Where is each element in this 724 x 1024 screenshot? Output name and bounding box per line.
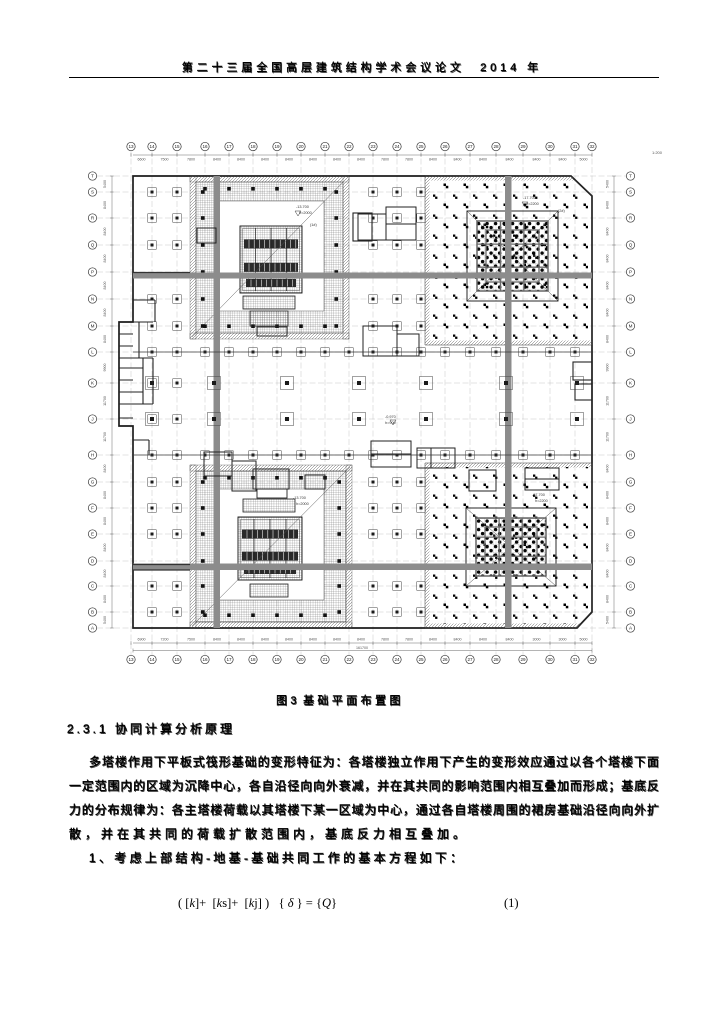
svg-text:h=2000: h=2000 <box>299 211 312 215</box>
svg-text:30: 30 <box>547 657 553 662</box>
svg-text:H: H <box>91 453 94 458</box>
svg-text:8400: 8400 <box>606 595 610 603</box>
svg-text:11700: 11700 <box>103 396 107 406</box>
svg-text:8400: 8400 <box>506 638 514 642</box>
svg-text:h=2200: h=2200 <box>526 202 539 206</box>
svg-text:8400: 8400 <box>213 638 221 642</box>
svg-text:20: 20 <box>298 144 304 149</box>
svg-text:8400: 8400 <box>103 595 107 603</box>
svg-text:K: K <box>91 381 95 386</box>
svg-text:14: 14 <box>149 657 155 662</box>
svg-text:8400: 8400 <box>103 255 107 263</box>
svg-text:8400: 8400 <box>261 638 269 642</box>
svg-text:8400: 8400 <box>606 335 610 343</box>
svg-text:6900: 6900 <box>138 638 146 642</box>
svg-text:E: E <box>629 532 632 537</box>
svg-text:8400: 8400 <box>103 491 107 499</box>
svg-text:19: 19 <box>274 144 280 149</box>
svg-text:23: 23 <box>370 144 376 149</box>
svg-text:7800: 7800 <box>381 638 389 642</box>
svg-text:29: 29 <box>520 144 526 149</box>
svg-text:13: 13 <box>128 657 134 662</box>
svg-text:-13.700: -13.700 <box>293 496 306 500</box>
svg-text:15: 15 <box>174 657 180 662</box>
svg-text:8400: 8400 <box>533 158 541 162</box>
svg-text:R: R <box>629 216 633 221</box>
svg-text:-17.700: -17.700 <box>523 196 536 200</box>
svg-text:3000: 3000 <box>559 638 567 642</box>
svg-text:5000: 5000 <box>580 638 588 642</box>
svg-text:D: D <box>629 559 633 564</box>
svg-text:9900: 9900 <box>103 364 107 372</box>
svg-text:8400: 8400 <box>506 158 514 162</box>
svg-text:8400: 8400 <box>237 638 245 642</box>
svg-text:31: 31 <box>572 657 578 662</box>
svg-text:14: 14 <box>149 144 155 149</box>
svg-text:27: 27 <box>467 144 473 149</box>
svg-text:F: F <box>91 506 94 511</box>
svg-text:8400: 8400 <box>261 158 269 162</box>
svg-text:M: M <box>629 324 633 329</box>
svg-text:8400: 8400 <box>606 491 610 499</box>
svg-text:8400: 8400 <box>479 158 487 162</box>
svg-text:8400: 8400 <box>103 335 107 343</box>
svg-text:7200: 7200 <box>161 638 169 642</box>
svg-text:22: 22 <box>346 144 352 149</box>
svg-text:25: 25 <box>418 657 424 662</box>
svg-text:M: M <box>91 324 95 329</box>
svg-text:7800: 7800 <box>405 638 413 642</box>
svg-text:5400: 5400 <box>606 180 610 188</box>
svg-text:25: 25 <box>418 144 424 149</box>
svg-text:26: 26 <box>442 144 448 149</box>
svg-text:L: L <box>629 350 632 355</box>
svg-text:8400: 8400 <box>285 638 293 642</box>
svg-text:31: 31 <box>572 144 578 149</box>
svg-text:8400: 8400 <box>103 282 107 290</box>
svg-text:8400: 8400 <box>333 638 341 642</box>
svg-text:h=2200: h=2200 <box>535 499 548 503</box>
svg-text:20: 20 <box>298 657 304 662</box>
svg-text:24: 24 <box>394 657 400 662</box>
svg-text:8400: 8400 <box>357 158 365 162</box>
svg-text:G: G <box>629 480 633 485</box>
svg-text:16: 16 <box>202 144 208 149</box>
svg-text:D: D <box>91 559 95 564</box>
svg-text:8400: 8400 <box>285 158 293 162</box>
svg-text:15: 15 <box>174 144 180 149</box>
svg-text:K: K <box>629 381 633 386</box>
svg-text:18: 18 <box>250 144 256 149</box>
svg-text:A: A <box>629 626 633 631</box>
svg-text:T: T <box>91 174 94 179</box>
svg-text:L: L <box>91 350 94 355</box>
svg-text:8400: 8400 <box>606 255 610 263</box>
svg-text:32: 32 <box>589 657 595 662</box>
svg-text:8400: 8400 <box>606 282 610 290</box>
svg-text:30: 30 <box>547 144 553 149</box>
svg-text:N: N <box>91 297 94 302</box>
svg-text:(1#): (1#) <box>310 223 317 227</box>
svg-text:29: 29 <box>520 657 526 662</box>
svg-text:7800: 7800 <box>187 158 195 162</box>
svg-text:24: 24 <box>394 144 400 149</box>
svg-text:5400: 5400 <box>103 616 107 624</box>
svg-text:C: C <box>91 584 95 589</box>
svg-text:11700: 11700 <box>103 432 107 442</box>
svg-text:19: 19 <box>274 657 280 662</box>
svg-text:8400: 8400 <box>479 638 487 642</box>
svg-text:8400: 8400 <box>103 309 107 317</box>
svg-text:3000: 3000 <box>533 638 541 642</box>
svg-text:8400: 8400 <box>333 158 341 162</box>
svg-text:8400: 8400 <box>103 570 107 578</box>
svg-text:Q: Q <box>629 243 633 248</box>
svg-text:S: S <box>629 190 632 195</box>
svg-text:8400: 8400 <box>213 158 221 162</box>
svg-text:8400: 8400 <box>606 570 610 578</box>
svg-text:5000: 5000 <box>580 158 588 162</box>
svg-text:7500: 7500 <box>187 638 195 642</box>
svg-text:161700: 161700 <box>356 646 368 650</box>
svg-text:-13.700: -13.700 <box>296 205 309 209</box>
svg-text:7800: 7800 <box>405 158 413 162</box>
svg-text:8400: 8400 <box>454 638 462 642</box>
svg-text:8400: 8400 <box>103 517 107 525</box>
svg-text:28: 28 <box>493 144 499 149</box>
svg-text:11700: 11700 <box>606 396 610 406</box>
svg-text:8400: 8400 <box>606 228 610 236</box>
svg-text:8400: 8400 <box>357 638 365 642</box>
svg-text:8400: 8400 <box>103 544 107 552</box>
svg-text:8400: 8400 <box>309 638 317 642</box>
svg-text:C: C <box>629 584 633 589</box>
svg-text:8400: 8400 <box>606 517 610 525</box>
svg-text:B: B <box>91 610 94 615</box>
svg-text:21: 21 <box>322 144 328 149</box>
svg-text:8400: 8400 <box>606 201 610 209</box>
svg-text:-0.970: -0.970 <box>385 415 396 419</box>
svg-text:32: 32 <box>589 144 595 149</box>
svg-text:S: S <box>91 190 94 195</box>
svg-text:23: 23 <box>370 657 376 662</box>
svg-text:F: F <box>629 506 632 511</box>
svg-text:8400: 8400 <box>103 201 107 209</box>
svg-text:5400: 5400 <box>103 180 107 188</box>
svg-text:1:200: 1:200 <box>652 150 663 155</box>
svg-text:h=2000: h=2000 <box>296 502 309 506</box>
svg-text:R: R <box>91 216 95 221</box>
svg-text:17: 17 <box>226 657 232 662</box>
svg-text:6600: 6600 <box>138 158 146 162</box>
svg-text:18: 18 <box>250 657 256 662</box>
svg-text:9900: 9900 <box>606 364 610 372</box>
svg-text:22: 22 <box>346 657 352 662</box>
svg-text:7800: 7800 <box>381 158 389 162</box>
svg-text:17: 17 <box>226 144 232 149</box>
svg-text:h=900: h=900 <box>385 421 396 425</box>
svg-text:A: A <box>91 626 95 631</box>
svg-text:8400: 8400 <box>309 158 317 162</box>
svg-text:J: J <box>629 417 631 422</box>
svg-text:7500: 7500 <box>161 158 169 162</box>
svg-text:8400: 8400 <box>237 158 245 162</box>
svg-text:T: T <box>629 174 632 179</box>
svg-text:8400: 8400 <box>606 309 610 317</box>
svg-text:5400: 5400 <box>606 616 610 624</box>
svg-text:28: 28 <box>493 657 499 662</box>
svg-text:-17.700: -17.700 <box>532 493 545 497</box>
svg-text:E: E <box>91 532 94 537</box>
svg-text:8400: 8400 <box>429 638 437 642</box>
svg-text:H: H <box>629 453 632 458</box>
svg-text:P: P <box>629 270 632 275</box>
svg-text:16: 16 <box>202 657 208 662</box>
svg-text:27: 27 <box>467 657 473 662</box>
svg-text:G: G <box>91 480 95 485</box>
svg-text:21: 21 <box>322 657 328 662</box>
svg-text:N: N <box>629 297 632 302</box>
svg-text:B: B <box>629 610 632 615</box>
svg-text:11700: 11700 <box>606 432 610 442</box>
svg-text:8400: 8400 <box>606 465 610 473</box>
svg-text:P: P <box>91 270 94 275</box>
svg-text:8400: 8400 <box>429 158 437 162</box>
svg-text:8400: 8400 <box>103 465 107 473</box>
svg-text:13: 13 <box>128 144 134 149</box>
svg-text:8400: 8400 <box>606 544 610 552</box>
svg-text:J: J <box>91 417 93 422</box>
svg-text:Q: Q <box>91 243 95 248</box>
svg-text:8400: 8400 <box>559 158 567 162</box>
svg-text:8400: 8400 <box>454 158 462 162</box>
svg-text:(2#): (2#) <box>558 209 565 213</box>
svg-text:8400: 8400 <box>103 228 107 236</box>
svg-text:26: 26 <box>442 657 448 662</box>
